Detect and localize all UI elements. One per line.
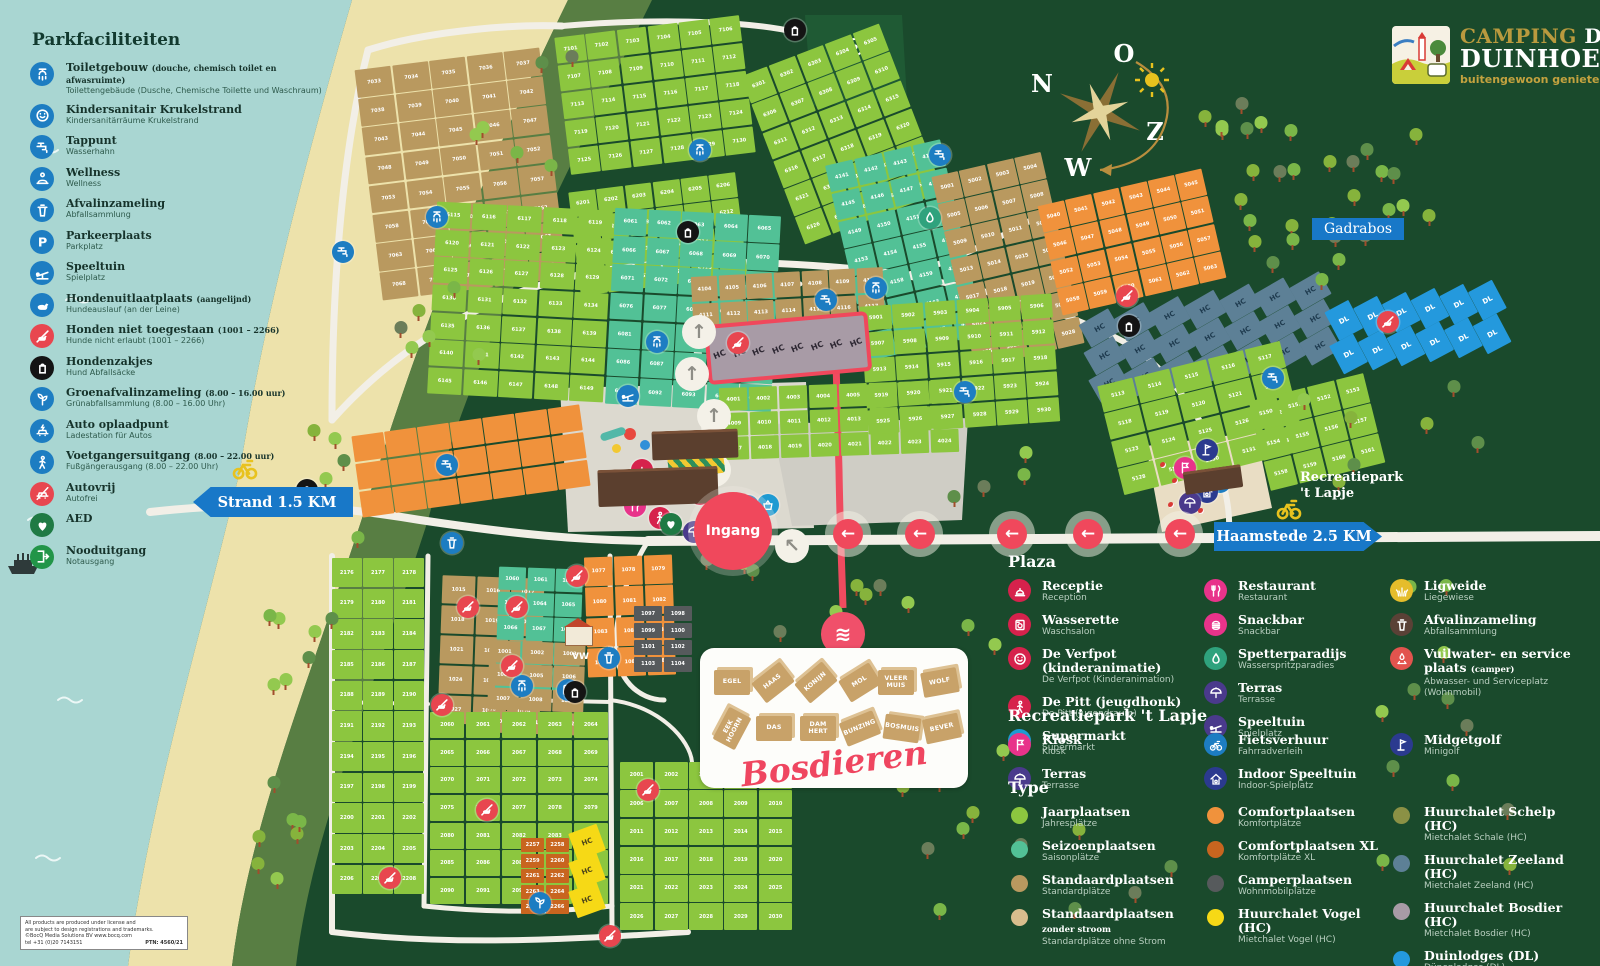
plot: 2030 [759, 903, 792, 930]
plot: 6144 [570, 347, 605, 375]
facility-label-de: Grünabfallsammlung (8.00 – 16.00 Uhr) [66, 399, 285, 409]
tree-icon [1248, 235, 1261, 252]
brand-block: CAMPING DE DUINHOEVE buitengewoon geniet… [1392, 26, 1592, 100]
plot: 1099 [634, 623, 662, 638]
plot: 5902 [892, 302, 924, 328]
type-color-swatch [1393, 807, 1410, 824]
hc-label: HC [810, 339, 825, 352]
plot [425, 478, 460, 508]
plot: 2002 [655, 762, 688, 789]
legend-label-de: Kiosk [1042, 747, 1082, 758]
plot: 5924 [1026, 371, 1058, 397]
map-icon-shower [646, 331, 668, 353]
facility-shower: Toiletgebouw (douche, chemisch toilet en… [30, 62, 330, 96]
bell-icon [1008, 579, 1031, 602]
facility-text: Tappunt Wasserhahn [66, 135, 117, 157]
cabin-konijn: KONIJN [794, 661, 838, 703]
plot: 2199 [394, 773, 424, 802]
face-icon [1008, 647, 1031, 670]
plot [556, 460, 591, 490]
plot: 5007 [993, 186, 1025, 218]
tree-icon [1273, 165, 1286, 182]
legend-label-de: Abwasser- und Serviceplatz (Wohnmobil) [1424, 677, 1586, 699]
plot: 2011 [620, 819, 653, 846]
tree-icon [1266, 256, 1279, 273]
plot: 5915 [928, 352, 960, 378]
playground-item [612, 444, 621, 453]
plot: 2016 [620, 847, 653, 874]
plot: 1102 [664, 640, 692, 655]
carx-icon [30, 482, 54, 506]
plot: 4155 [903, 230, 937, 263]
tree-icon [902, 596, 915, 613]
plot: 6064 [714, 213, 747, 241]
facility-label-de: Fußgängerausgang (8.00 – 22.00 Uhr) [66, 462, 274, 472]
legend-label-nl: Seizoenplaatsen [1042, 839, 1156, 853]
plot: 5155 [1285, 418, 1320, 454]
plot: 2074 [574, 767, 608, 793]
plot: 7113 [561, 90, 594, 120]
tree-icon [1361, 143, 1374, 160]
plot: 6203 [624, 182, 654, 210]
legend-label-nl: Standaardplaatsen zonder stroom [1042, 907, 1204, 937]
burger-icon [1204, 613, 1227, 636]
facility-label-de: Notausgang [66, 557, 146, 567]
cabin-mol: MOL [838, 662, 882, 702]
plot: 2029 [724, 903, 757, 930]
plot: 1021 [440, 635, 474, 665]
fine-print-line: tel +31 (0)20 7143151PTN: 4560/21 [25, 940, 183, 947]
facility-leaf: Groenafvalinzameling (8.00 – 16.00 uur)G… [30, 387, 330, 411]
plot: 7050 [440, 144, 479, 176]
plot: 7119 [564, 117, 597, 147]
legend-text: Afvalinzameling Abfallsammlung [1424, 613, 1537, 638]
map-icon-shower [865, 277, 887, 299]
legend-text: Jaarplaatsen Jahresplätze [1042, 805, 1130, 830]
facility-label-nl: Hondenzakjes [66, 356, 153, 368]
dogx-icon [30, 324, 54, 348]
facility-text: Speeltuin Spielplatz [66, 261, 125, 283]
golf-icon [1390, 733, 1413, 756]
type-color-swatch [1011, 909, 1028, 926]
facility-label-nl: Nooduitgang [66, 545, 146, 557]
playground-item [624, 428, 636, 440]
plot: 1079 [644, 555, 673, 585]
tree-icon [1255, 116, 1268, 133]
facility-label-de: Ladestation für Autos [66, 431, 169, 441]
facility-label-nl: Hondenuitlaatplaats (aangelijnd) [66, 293, 251, 305]
map-icon-dogx [727, 332, 749, 354]
one-way-arrow: ↑ [675, 357, 709, 391]
legend-label-de: Wasserspritzparadies [1238, 661, 1346, 672]
legend-label-nl: Ligweide [1424, 579, 1486, 593]
tree-icon [476, 121, 489, 138]
plot: 2085 [430, 850, 464, 876]
tree-icon [1420, 417, 1433, 434]
legend-column: Comfortplaatsen KomfortplätzeComfortplaa… [1204, 805, 1390, 966]
map-icon-bag [784, 19, 806, 41]
legend-label-nl: Afvalinzameling [1424, 613, 1537, 627]
plaza-building-2 [652, 429, 739, 461]
mushroom-icon [1168, 502, 1174, 508]
facility-label-de: Autofrei [66, 494, 115, 504]
plot: 2060 [430, 712, 464, 738]
lapje-title: Recreatiepark 't Lapje [1008, 706, 1588, 725]
legend-item: Huurchalet Vogel (HC) Mietchalet Vogel (… [1204, 907, 1390, 946]
tree-icon [263, 609, 276, 626]
legend-text: Comfortplaatsen XL Komfortplätze XL [1238, 839, 1378, 864]
plot: 4146 [861, 181, 895, 214]
legend-label-nl: Comfortplaatsen XL [1238, 839, 1378, 853]
tree-icon [271, 872, 284, 889]
map-icon-dogx [506, 596, 528, 618]
tree-icon [351, 531, 364, 548]
map-icon-dogx [379, 867, 401, 889]
facility-text: Wellness Wellness [66, 167, 120, 189]
facility-label-de: Hunde nicht erlaubt (1001 – 2266) [66, 336, 279, 346]
tree-icon [267, 678, 280, 695]
plot: 5011 [999, 213, 1031, 245]
map-icon-bag [677, 221, 699, 243]
type-color-swatch [1011, 875, 1028, 892]
plot: 2063 [538, 712, 572, 738]
tap-icon [30, 135, 54, 159]
plot: 7111 [682, 47, 715, 77]
legend-label-de: Terrasse [1238, 695, 1282, 706]
plot: 6081 [608, 320, 641, 348]
trash-icon [30, 198, 54, 222]
tree-icon [948, 490, 961, 507]
hc-label: HC [829, 337, 844, 350]
tree-icon [412, 304, 425, 321]
plot: HC [568, 882, 606, 918]
tree-icon [1243, 214, 1256, 231]
plot [523, 464, 558, 494]
facility-label-nl: Afvalinzameling [66, 198, 165, 210]
legend-label-nl: Restaurant [1238, 579, 1316, 593]
tree-icon [423, 330, 436, 347]
plot: 5912 [1022, 319, 1054, 345]
plot: 4106 [746, 273, 773, 300]
legend-column: Jaarplaatsen JahresplätzeSeizoenplaatsen… [1008, 805, 1204, 966]
plot: 7126 [599, 141, 632, 171]
plot: 2200 [332, 803, 362, 832]
plot: 7122 [658, 106, 691, 136]
legend-label-de: Komfortplätze XL [1238, 853, 1378, 864]
plot: 6149 [569, 375, 604, 403]
type-color-swatch [1207, 841, 1224, 858]
plot: 7115 [623, 82, 656, 112]
facility-text: Honden niet toegestaan (1001 – 2266)Hund… [66, 324, 279, 346]
plot: 2070 [430, 767, 464, 793]
plot: 7124 [720, 98, 753, 128]
tree-icon [1348, 189, 1361, 206]
plot: 6119 [578, 209, 613, 237]
plot: 7047 [511, 105, 550, 137]
tree-icon [1423, 209, 1436, 226]
legend-item: Snackbar Snackbar [1204, 613, 1390, 638]
plot: 5904 [956, 298, 988, 324]
plot: 5920 [897, 380, 929, 406]
plot: 2204 [363, 834, 393, 863]
facility-label-nl: Kindersanitair Krukelstrand [66, 104, 242, 116]
legend-item: Comfortplaatsen Komfortplätze [1204, 805, 1390, 830]
plot: 2091 [466, 878, 500, 904]
facility-text: Voetgangersuitgang (8.00 – 22.00 uur)Fuß… [66, 450, 274, 472]
legend-column: Huurchalet Schelp (HC) Mietchalet Schale… [1390, 805, 1586, 966]
map-icon-shower [689, 139, 711, 161]
facility-carx: Autovrij Autofrei [30, 482, 330, 506]
plot: 2086 [466, 850, 500, 876]
facility-label-nl: Auto oplaadpunt [66, 419, 169, 431]
facility-text: Hondenzakjes Hund Abfallsäcke [66, 356, 153, 378]
tree-icon [302, 651, 315, 668]
tree-icon [1344, 411, 1357, 428]
plot [454, 446, 489, 476]
plot: 7125 [568, 145, 601, 175]
legend-text: Terras Terrasse [1238, 681, 1282, 706]
legend-text: Midgetgolf Minigolf [1424, 733, 1501, 758]
exit-icon [30, 545, 54, 569]
map-icon-trash [441, 532, 463, 554]
legend-item: Huurchalet Schelp (HC) Mietchalet Schale… [1390, 805, 1586, 844]
plot: 2190 [394, 681, 424, 710]
plot: 2028 [689, 903, 722, 930]
plot: 5911 [990, 322, 1022, 348]
plot: 5005 [938, 199, 970, 231]
plot [519, 437, 554, 467]
legend-label-nl: Spetterparadijs [1238, 647, 1346, 661]
plot: 6077 [643, 294, 676, 322]
plot: 5047 [1071, 222, 1103, 254]
plot: 4023 [900, 430, 929, 454]
plot: 7044 [399, 119, 438, 151]
type-color-swatch [1207, 807, 1224, 824]
plot-zone-jr: 2176217721782179218021812182218321842185… [332, 558, 424, 894]
plot: 7117 [685, 74, 718, 104]
legend-item: Standaardplaatsen zonder stroomStandardp… [1008, 907, 1204, 948]
facility-exit: Nooduitgang Notausgang [30, 545, 330, 569]
tree-icon [1315, 273, 1328, 290]
facility-label-de: Wellness [66, 179, 120, 189]
plot: HC [568, 824, 606, 860]
facility-aed: AED [30, 513, 330, 537]
entrance-marker: Ingang [694, 492, 772, 570]
plot: 5062 [1167, 258, 1199, 290]
facility-label-de: Spielplatz [66, 273, 125, 283]
plot: 2071 [466, 767, 500, 793]
plot: 6146 [463, 369, 498, 397]
plot: 4005 [838, 383, 867, 407]
legend-label-de: Reception [1042, 593, 1103, 604]
legend-text: Camperplaatsen Wohnmobilplätze [1238, 873, 1352, 898]
plot: 5009 [944, 226, 976, 258]
plot: 5049 [1127, 209, 1159, 241]
logo-illustration [1392, 26, 1450, 84]
plot: 7127 [630, 137, 663, 167]
plot: 2198 [363, 773, 393, 802]
facility-trash: Afvalinzameling Abfallsammlung [30, 198, 330, 222]
plot: 2196 [394, 742, 424, 771]
plot: 5927 [931, 404, 963, 430]
tree-icon [511, 146, 524, 163]
plot: 4021 [840, 432, 869, 456]
legend-text: De Verfpot (kinderanimatie) De Verfpot (… [1042, 647, 1204, 686]
plot: 5043 [1120, 181, 1152, 213]
plot: 5015 [1006, 241, 1038, 273]
plot: 4154 [874, 237, 908, 270]
facility-text: Parkeerplaats Parkplatz [66, 230, 152, 252]
plot: 7105 [678, 19, 711, 49]
plot: 5925 [867, 408, 899, 434]
plot: 2079 [574, 795, 608, 821]
map-icon-tap [436, 454, 458, 476]
plot: 2188 [332, 681, 362, 710]
tree-icon [1286, 233, 1299, 250]
legend-item: Kiosk Kiosk [1008, 733, 1204, 758]
facility-label-nl: Speeltuin [66, 261, 125, 273]
plot [355, 460, 390, 490]
facility-face: Kindersanitair Krukelstrand Kindersanitä… [30, 104, 330, 128]
plot: 7114 [592, 86, 625, 116]
facility-dog: Hondenuitlaatplaats (aangelijnd)Hundeaus… [30, 293, 330, 317]
legend-item: Terras Terrasse [1204, 681, 1390, 706]
bag-icon [30, 356, 54, 380]
plot: 2262 [546, 869, 569, 883]
plot: 7130 [723, 126, 756, 156]
plot: 4013 [839, 407, 868, 431]
facility-text: Groenafvalinzameling (8.00 – 16.00 uur)G… [66, 387, 285, 409]
legend-text: Kiosk Kiosk [1042, 733, 1082, 758]
plot: 6116 [471, 203, 506, 231]
legend-label-nl: Snackbar [1238, 613, 1304, 627]
carbolt-icon [30, 419, 54, 443]
plot: 4019 [780, 434, 809, 458]
plot: 4003 [779, 385, 808, 409]
legend-label-nl: Jaarplaatsen [1042, 805, 1130, 819]
plot: 2026 [620, 903, 653, 930]
map-icon-tap [954, 381, 976, 403]
plot: 7103 [616, 27, 649, 57]
plot: 2260 [546, 854, 569, 868]
plot: 5905 [988, 296, 1020, 322]
road-direction-arrow: ← [1065, 511, 1111, 557]
tree-icon [325, 612, 338, 629]
plot [548, 404, 583, 434]
facility-label-de: Abfallsammlung [66, 210, 165, 220]
legend-item: Receptie Reception [1008, 579, 1204, 604]
tree-icon [308, 625, 321, 642]
plot: 5042 [1093, 188, 1125, 220]
plot [490, 469, 525, 499]
map-icon-dogx [637, 779, 659, 801]
plot: 4149 [838, 216, 872, 249]
type-title: Type [1008, 778, 1596, 797]
legend-label-nl: Camperplaatsen [1238, 873, 1352, 887]
plot: 5041 [1065, 194, 1097, 226]
cabin-wolf: WOLF [920, 667, 960, 698]
plot: 5003 [987, 158, 1019, 190]
plot: 5004 [1014, 152, 1046, 184]
plot: DL [1468, 280, 1507, 321]
tree-icon [1347, 155, 1360, 172]
plot [486, 441, 521, 471]
legend-item: Vuilwater- en service plaats (camper)Abw… [1390, 647, 1586, 699]
plot: 6129 [575, 264, 610, 292]
plot-zone-cf [351, 404, 590, 517]
plot: 6143 [535, 345, 570, 373]
plot: 5044 [1148, 175, 1180, 207]
plot: 6120 [434, 229, 469, 257]
plot: 1064 [526, 592, 554, 616]
legend-label-de: Standardplätze ohne Strom [1042, 937, 1204, 948]
map-icon-dogx [1377, 311, 1399, 333]
legend-label-de: Restaurant [1238, 593, 1316, 604]
plot: 6204 [652, 179, 682, 207]
plot: 2075 [430, 795, 464, 821]
plot: 2080 [430, 823, 464, 849]
plot: 6069 [713, 241, 746, 269]
plot: 4022 [870, 431, 899, 455]
mushroom-icon [1160, 462, 1166, 468]
plot: 4107 [774, 271, 801, 298]
plot: 7104 [647, 23, 680, 53]
plot: 5917 [992, 347, 1024, 373]
type-color-swatch [1207, 875, 1224, 892]
plot: 4142 [854, 153, 888, 186]
legend-label-nl: Fietsverhuur [1238, 733, 1328, 747]
legend-label-de: Jahresplätze [1042, 819, 1130, 830]
plot: HC [568, 853, 606, 889]
map-icon-shower [511, 675, 533, 697]
plot: 2062 [502, 712, 536, 738]
plot: 5153 [1336, 373, 1371, 409]
plot: 5923 [994, 373, 1026, 399]
sign-haamstede: Haamstede 2.5 KM [1214, 522, 1382, 551]
legend-item: Seizoenplaatsen Saisonplätze [1008, 839, 1204, 864]
plot: 5908 [894, 328, 926, 354]
tree-icon [1215, 120, 1228, 137]
mushroom-icon [1172, 478, 1178, 484]
legend-label-de: Liegewiese [1424, 593, 1486, 604]
legend-label-de: Standardplätze [1042, 887, 1174, 898]
plot: 6124 [576, 237, 611, 265]
plot: 2020 [759, 847, 792, 874]
tree-icon [1332, 253, 1345, 270]
legend-label-nl: Midgetgolf [1424, 733, 1501, 747]
plot: 4145 [831, 187, 865, 220]
plot: 2203 [332, 834, 362, 863]
map-icon-dogx [599, 925, 621, 947]
plot: 2007 [655, 790, 688, 817]
tree-icon [329, 432, 342, 449]
plot: 1066 [497, 616, 525, 640]
plot: 2065 [430, 740, 464, 766]
type-color-swatch [1393, 903, 1410, 920]
plot: 6123 [541, 235, 576, 263]
plot: 2206 [332, 865, 362, 894]
legend-text: Huurchalet Schelp (HC) Mietchalet Schale… [1424, 805, 1586, 844]
plot: 4020 [810, 433, 839, 457]
plot: 6065 [748, 215, 781, 243]
plot: 2259 [521, 854, 544, 868]
plot: 7039 [395, 90, 434, 122]
plot: 7049 [402, 148, 441, 180]
facility-dogx: Honden niet toegestaan (1001 – 2266)Hund… [30, 324, 330, 348]
facility-carbolt: Auto oplaadpunt Ladestation für Autos [30, 419, 330, 443]
plot: 2192 [363, 711, 393, 740]
legend-text: Fietsverhuur Fahrradverleih [1238, 733, 1328, 758]
